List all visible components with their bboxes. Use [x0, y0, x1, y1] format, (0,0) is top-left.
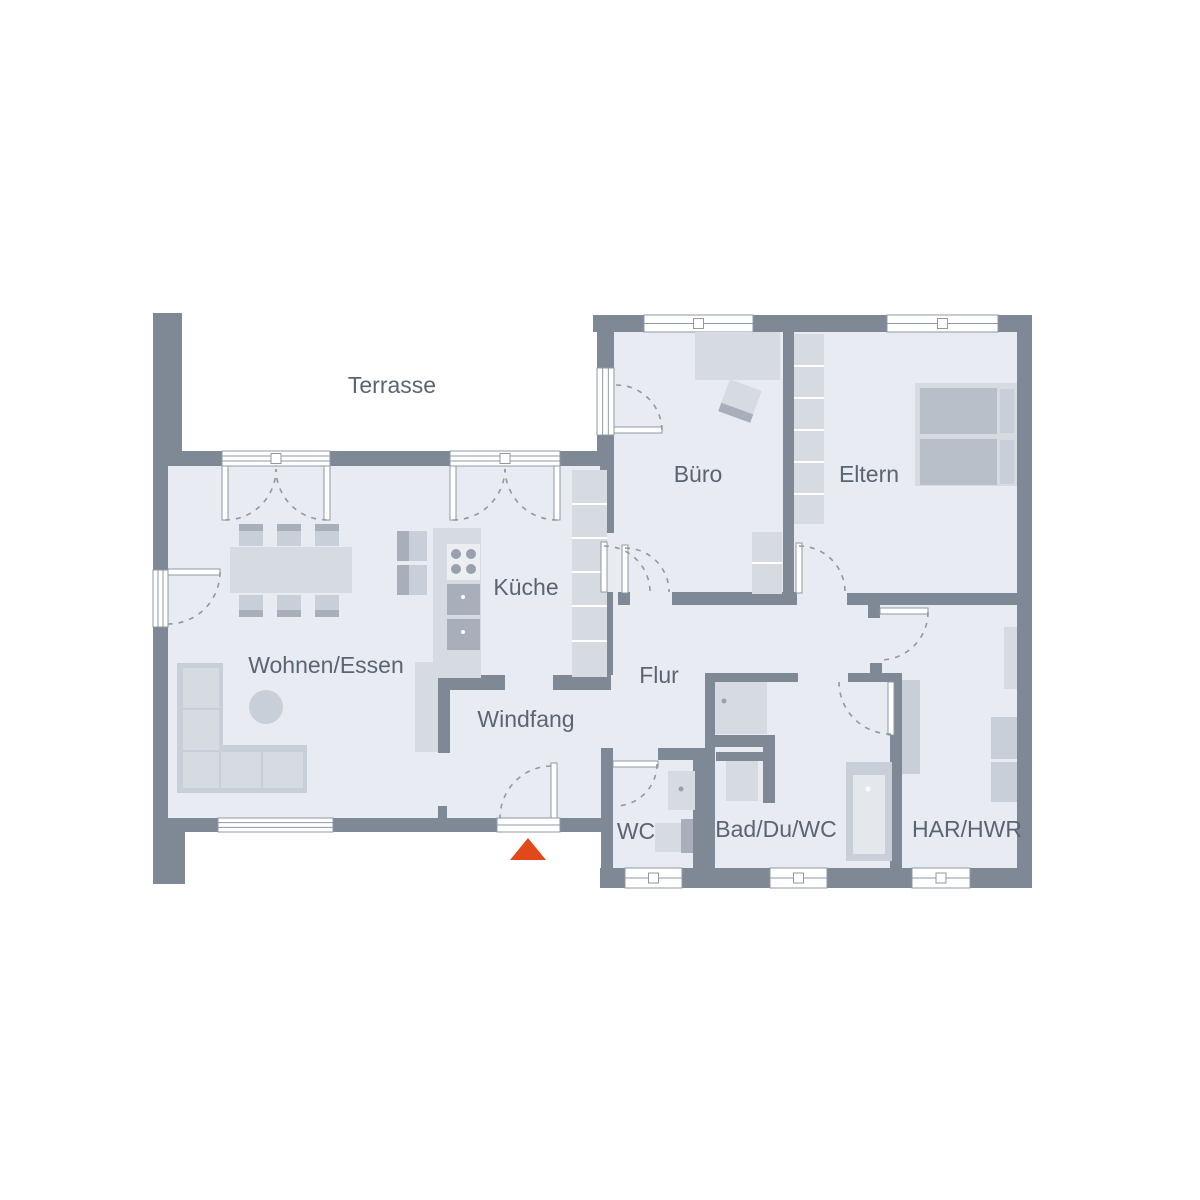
chair-back [277, 524, 301, 531]
room-label-wc: WC [617, 818, 655, 844]
wall [618, 592, 630, 605]
wall [870, 663, 882, 673]
door-leaf [551, 763, 557, 818]
window-pane [218, 818, 333, 832]
wall [868, 605, 880, 618]
washer [991, 717, 1017, 759]
window-door-pane [153, 570, 168, 627]
sofa-cushion [183, 668, 219, 708]
room-label-har-hwr: HAR/HWR [912, 816, 1022, 842]
toilet-tank [681, 819, 693, 853]
french-door [222, 451, 330, 466]
shower [715, 682, 767, 734]
wall [553, 675, 611, 690]
chair-back [277, 610, 301, 617]
wall [1017, 315, 1032, 888]
cooktop [447, 544, 480, 580]
wall [168, 451, 222, 466]
wall [847, 593, 1017, 605]
wardrobe-divider [794, 365, 824, 367]
room-label-wohnen-essen: Wohnen/Essen [248, 652, 404, 678]
wall [970, 868, 1032, 888]
wall [682, 868, 770, 888]
door-leaf [168, 569, 220, 575]
wall [153, 451, 168, 832]
oven-knob [461, 630, 465, 634]
pillow [1000, 440, 1014, 484]
door-leaf [554, 466, 560, 520]
sofa-cushion [221, 752, 261, 788]
wall [153, 832, 185, 884]
chair-back [315, 524, 339, 531]
cabinet-divider [572, 640, 607, 642]
door-leaf [450, 466, 456, 520]
oven [447, 584, 480, 615]
sofa-cushion [183, 710, 219, 750]
wardrobe-divider [794, 397, 824, 399]
burner [451, 549, 461, 559]
dining-table [230, 547, 352, 593]
door-leaf [324, 466, 330, 520]
wall [438, 806, 447, 818]
french-door [450, 451, 560, 466]
wall [600, 868, 625, 888]
wall [601, 748, 613, 868]
burner [466, 549, 476, 559]
mullion-square [694, 319, 704, 329]
pillow [1000, 389, 1014, 433]
wall [333, 818, 497, 832]
wall [783, 332, 794, 592]
mullion-square [938, 319, 948, 329]
terrace-door-pane [597, 368, 614, 435]
mullion-square [649, 873, 659, 883]
room-label-terrasse: Terrasse [348, 372, 436, 398]
sideboard [415, 662, 438, 752]
window [625, 868, 682, 888]
wall [705, 673, 715, 748]
door-leaf [796, 543, 802, 593]
cabinet-divider [752, 562, 782, 564]
wardrobe-divider [794, 493, 824, 495]
window [644, 315, 753, 332]
window [912, 868, 970, 888]
stool-edge [397, 531, 409, 561]
chair-back [315, 610, 339, 617]
window [218, 818, 333, 832]
wardrobe-divider [794, 461, 824, 463]
wall [827, 868, 912, 888]
room-label-buero: Büro [674, 461, 723, 487]
window-door [153, 570, 168, 627]
wall [593, 315, 644, 332]
window [887, 315, 998, 332]
door-leaf [222, 466, 228, 520]
wall [716, 752, 768, 761]
window [770, 868, 827, 888]
wall [707, 673, 798, 682]
terrace-door [597, 368, 614, 435]
cabinet-divider [572, 605, 607, 607]
sofa-cushion [183, 752, 219, 788]
mullion-square [500, 454, 510, 464]
shaft [902, 680, 920, 774]
burner [466, 564, 476, 574]
burner [451, 564, 461, 574]
door-leaf [614, 427, 662, 433]
door-leaf [880, 608, 928, 614]
washbasin [726, 761, 758, 801]
mullion-square [271, 454, 281, 464]
mullion-square [794, 873, 804, 883]
wall [560, 451, 614, 466]
dryer [991, 762, 1017, 802]
marker-layer [510, 838, 546, 860]
mattress [920, 388, 997, 434]
cabinet-divider [572, 503, 607, 505]
desk [695, 332, 780, 380]
oven-drawer [447, 619, 480, 650]
wall [715, 735, 775, 747]
wall [168, 818, 218, 832]
wall [330, 451, 450, 466]
door-leaf [613, 761, 658, 767]
room-label-eltern: Eltern [839, 461, 899, 487]
shower-drain [722, 699, 727, 704]
cabinet-divider [572, 537, 607, 539]
entrance-arrow-icon [510, 838, 546, 860]
faucet-dot [866, 787, 871, 792]
coffee-table [249, 690, 283, 724]
chair-back [239, 610, 263, 617]
wall [153, 313, 182, 462]
oven-knob [461, 595, 465, 599]
chair-back [239, 524, 263, 531]
mattress [920, 439, 997, 485]
wall [693, 748, 715, 868]
stool-edge [397, 565, 409, 595]
room-label-flur: Flur [639, 662, 679, 688]
wardrobe-divider [794, 429, 824, 431]
toilet [655, 823, 681, 852]
tall-cabinet [1004, 627, 1017, 689]
wall [753, 315, 887, 332]
room-label-windfang: Windfang [477, 706, 574, 732]
wall [848, 673, 893, 682]
sofa-cushion [263, 752, 303, 788]
room-label-kueche: Küche [493, 574, 558, 600]
door-leaf [601, 542, 607, 592]
room-label-bad-du-wc: Bad/Du/WC [715, 816, 836, 842]
wall [597, 435, 614, 451]
entrance-sill [497, 818, 560, 832]
floor-plan-page: TerrasseBüroElternKücheWohnen/EssenFlurW… [0, 0, 1200, 1200]
faucet-dot [679, 787, 684, 792]
door-leaf [888, 682, 894, 735]
floor-plan-canvas: TerrasseBüroElternKücheWohnen/EssenFlurW… [0, 0, 1200, 1200]
mullion-square [936, 873, 946, 883]
